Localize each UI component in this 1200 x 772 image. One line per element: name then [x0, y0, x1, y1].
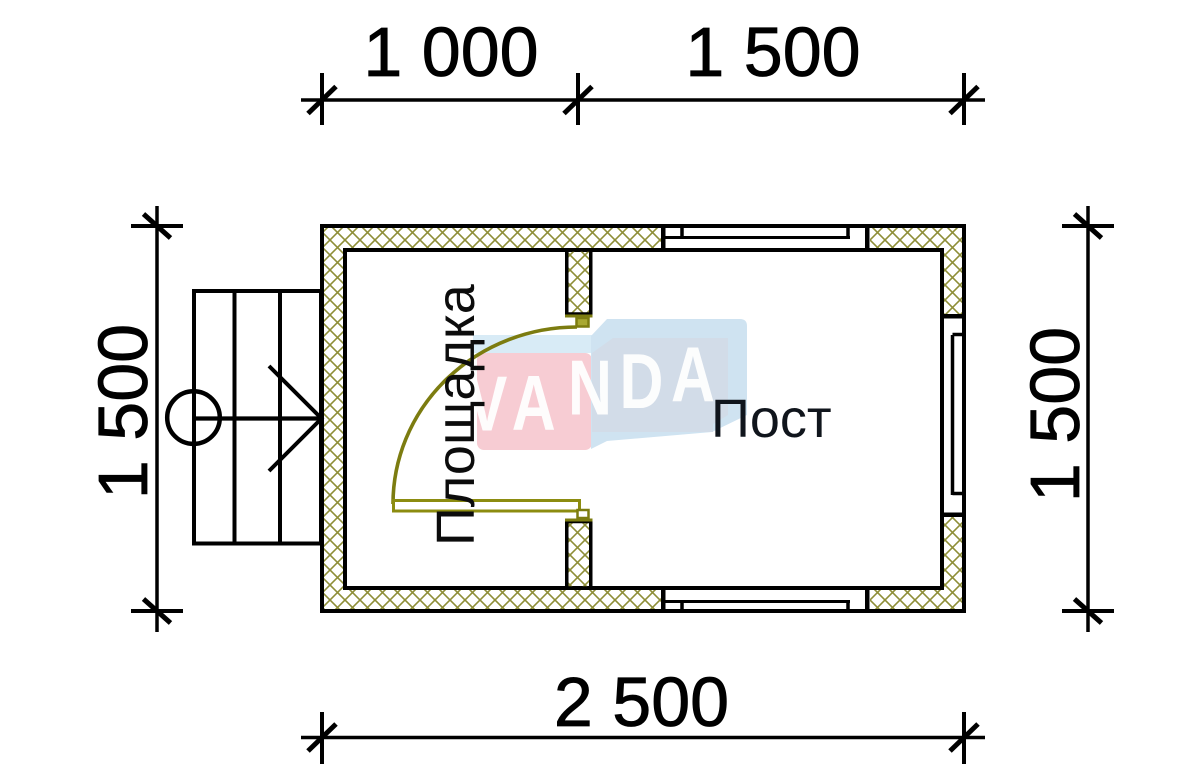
svg-text:1 000: 1 000	[363, 13, 538, 91]
svg-text:Площадка: Площадка	[426, 283, 486, 546]
svg-text:1 500: 1 500	[1016, 327, 1094, 502]
svg-text:A: A	[512, 359, 556, 446]
svg-text:D: D	[620, 338, 664, 425]
svg-text:A: A	[671, 331, 715, 418]
svg-text:Пост: Пост	[711, 389, 832, 449]
svg-text:1 500: 1 500	[84, 324, 162, 499]
svg-text:2 500: 2 500	[554, 663, 729, 741]
svg-text:N: N	[568, 344, 612, 431]
svg-text:1 500: 1 500	[685, 13, 860, 91]
